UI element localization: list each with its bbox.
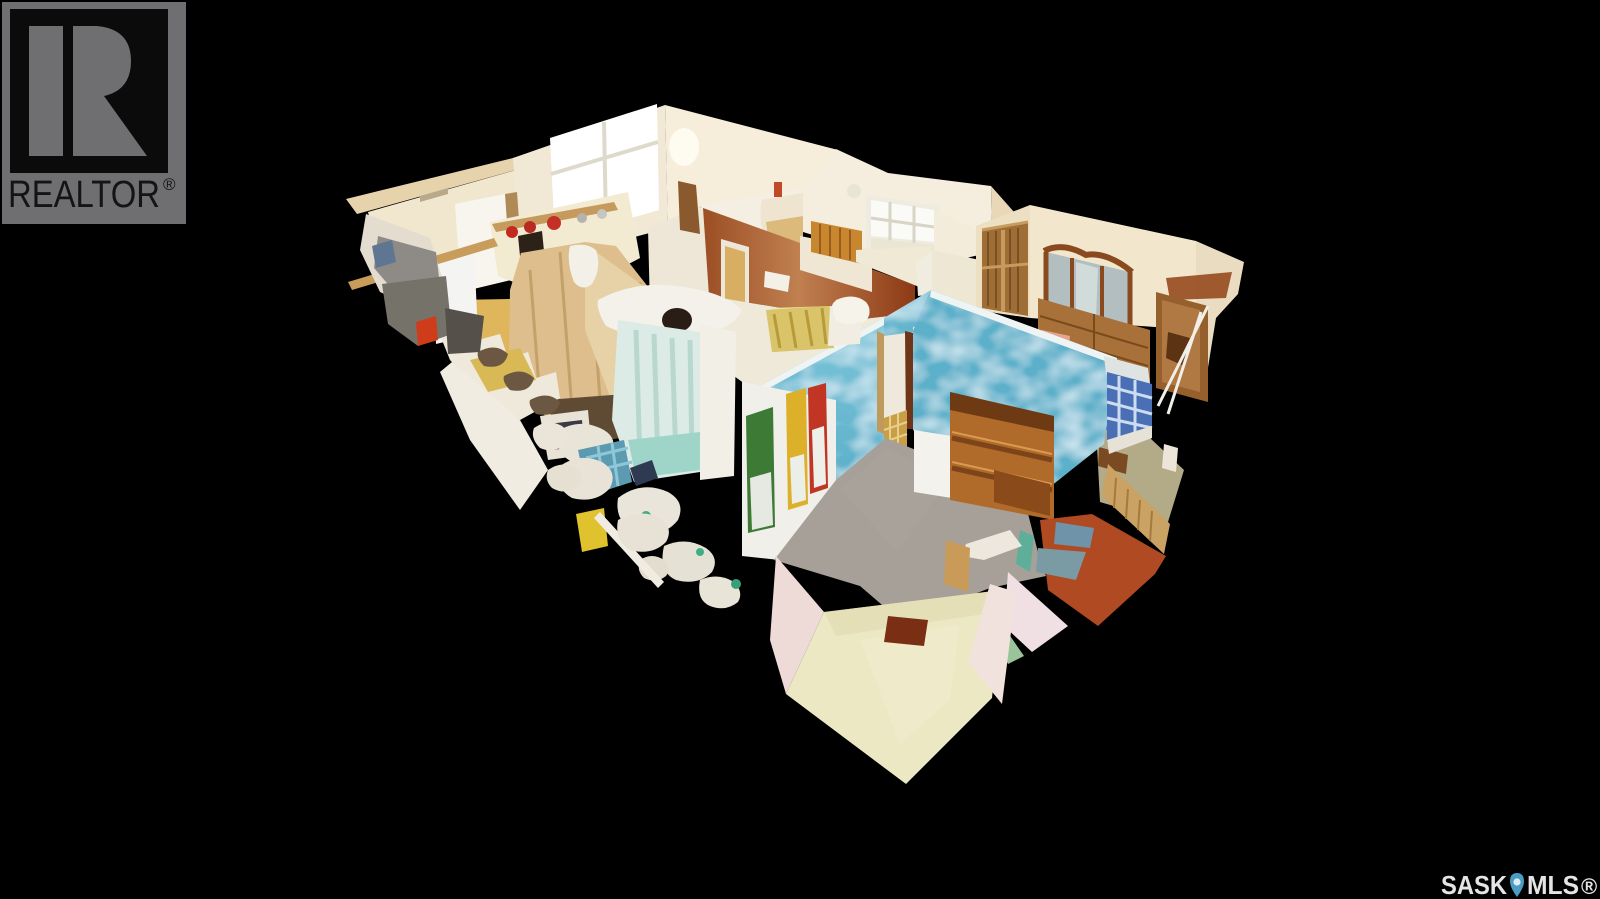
svg-text:MLS: MLS bbox=[1527, 870, 1579, 899]
svg-text:SASK: SASK bbox=[1441, 870, 1507, 899]
svg-text:®: ® bbox=[1581, 874, 1597, 899]
svg-text:REALTOR: REALTOR bbox=[8, 174, 160, 216]
svg-text:®: ® bbox=[163, 175, 176, 194]
